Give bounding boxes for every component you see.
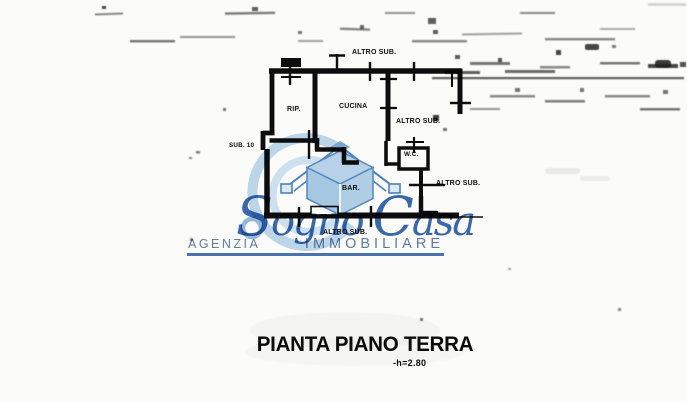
plan-label-altro-sub-right-lower: ALTRO SUB. <box>436 180 480 187</box>
scanned-floorplan-page: SognoCasa AGENZIA IMMOBILIARE <box>0 0 687 403</box>
room-label-bar: BAR. <box>342 185 360 192</box>
room-label-wc: W.C. <box>404 151 418 158</box>
plan-label-altro-sub-top: ALTRO SUB. <box>352 49 396 56</box>
plan-label-sub10: SUB. 10 <box>229 142 254 149</box>
plan-title: PIANTA PIANO TERRA <box>252 333 477 357</box>
plan-label-altro-sub-bottom: ALTRO SUB. <box>323 229 367 236</box>
watermark-tagline: AGENZIA IMMOBILIARE <box>188 236 444 252</box>
tagline-agenzia: AGENZIA <box>188 237 260 251</box>
tagline-immobiliare: IMMOBILIARE <box>305 236 444 252</box>
plan-label-altro-sub-right-upper: ALTRO SUB. <box>396 118 440 125</box>
tagline-underline <box>187 253 444 256</box>
room-label-cucina: CUCINA <box>339 103 367 110</box>
plan-height-note: -h=2.80 <box>393 358 426 368</box>
room-label-rip: RIP. <box>287 106 301 113</box>
